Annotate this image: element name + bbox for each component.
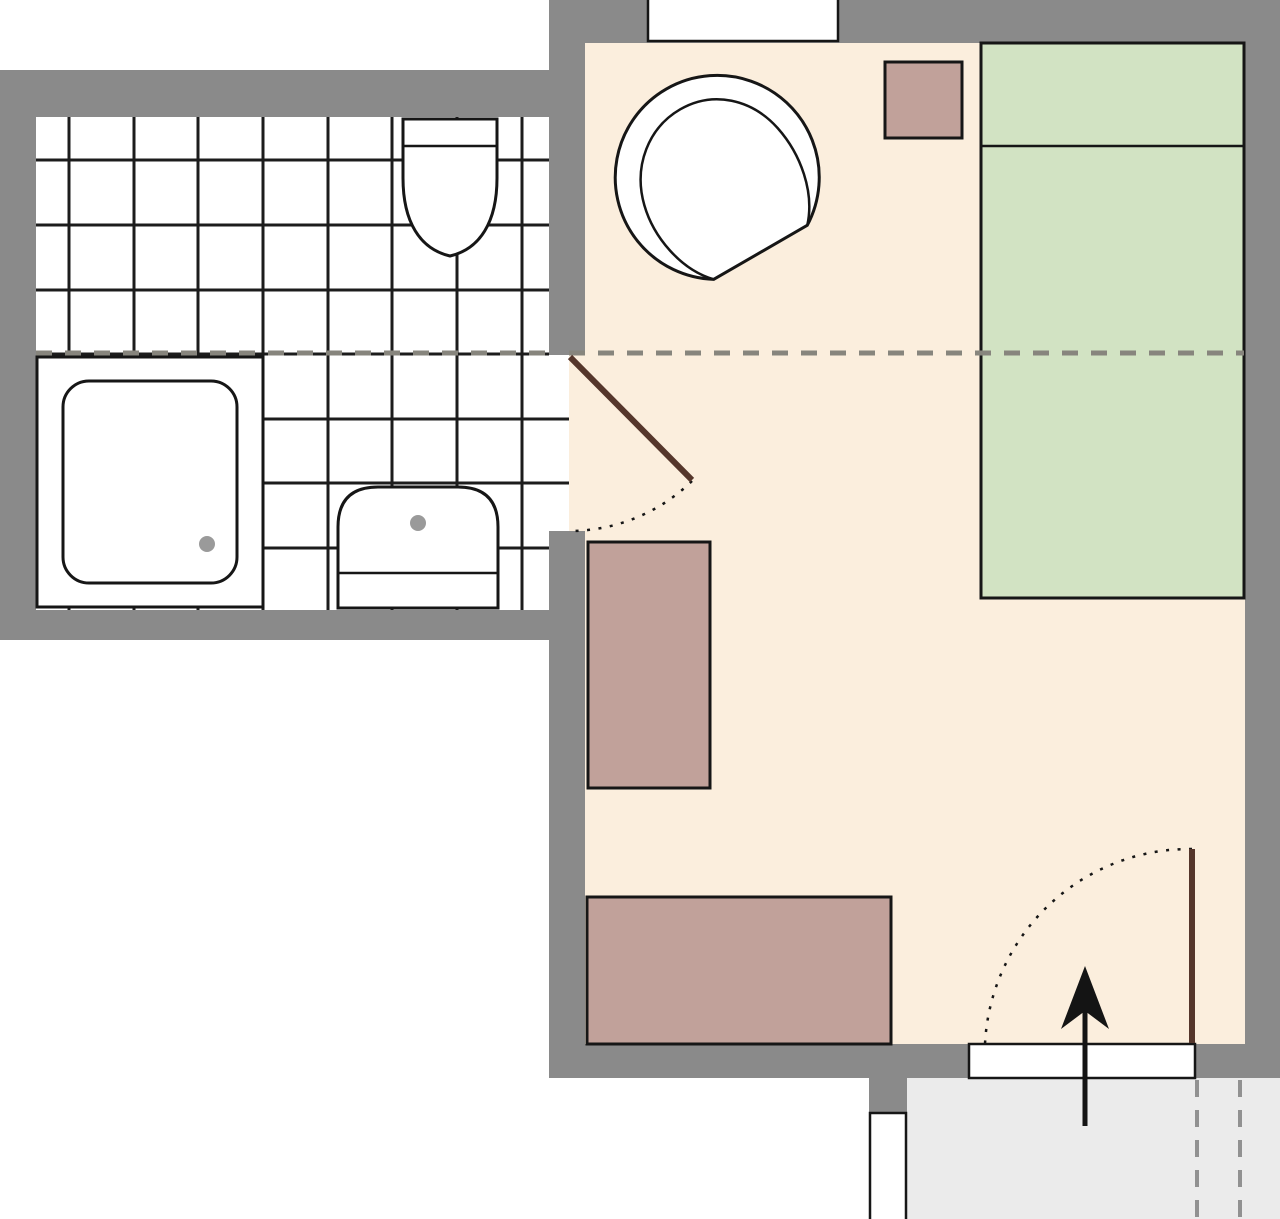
wall-left bbox=[0, 70, 36, 640]
desk bbox=[587, 897, 891, 1044]
corridor-floor bbox=[907, 1078, 1280, 1219]
wall-lower-column bbox=[869, 1078, 907, 1113]
shower-tray bbox=[63, 381, 237, 583]
entry-threshold bbox=[969, 1044, 1195, 1078]
floor-plan-canvas bbox=[0, 0, 1280, 1219]
top-window bbox=[648, 0, 838, 41]
wall-divider-lower bbox=[549, 531, 585, 1078]
wall-bathroom-top bbox=[0, 70, 585, 117]
interior-door-threshold bbox=[549, 355, 585, 531]
floor-plan bbox=[0, 0, 1280, 1219]
wall-right bbox=[1245, 0, 1280, 1078]
sink-basin bbox=[338, 487, 498, 608]
toilet bbox=[403, 119, 497, 256]
shower-drain bbox=[199, 536, 215, 552]
sink bbox=[338, 487, 498, 608]
bed-mattress bbox=[981, 43, 1244, 598]
wall-bathroom-bottom bbox=[0, 610, 585, 640]
nightstand bbox=[885, 62, 962, 138]
shower bbox=[37, 357, 263, 607]
bottom-window bbox=[870, 1113, 906, 1219]
bed bbox=[981, 43, 1244, 598]
toilet-bowl bbox=[403, 119, 497, 256]
wall-divider-upper bbox=[549, 0, 585, 355]
wardrobe bbox=[588, 542, 710, 788]
sink-faucet bbox=[410, 515, 426, 531]
